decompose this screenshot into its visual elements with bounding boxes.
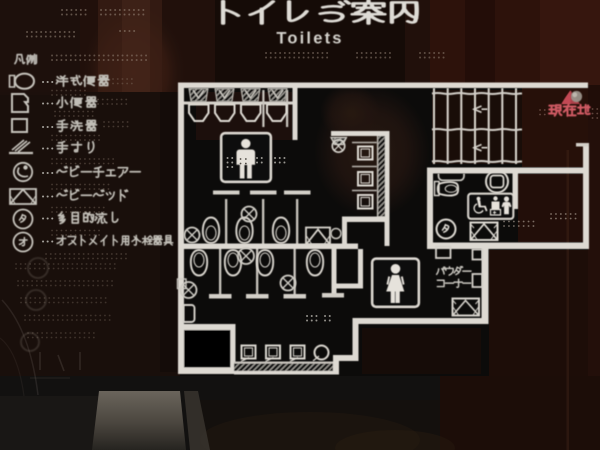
svg-text:Toilets: Toilets [276, 30, 343, 48]
